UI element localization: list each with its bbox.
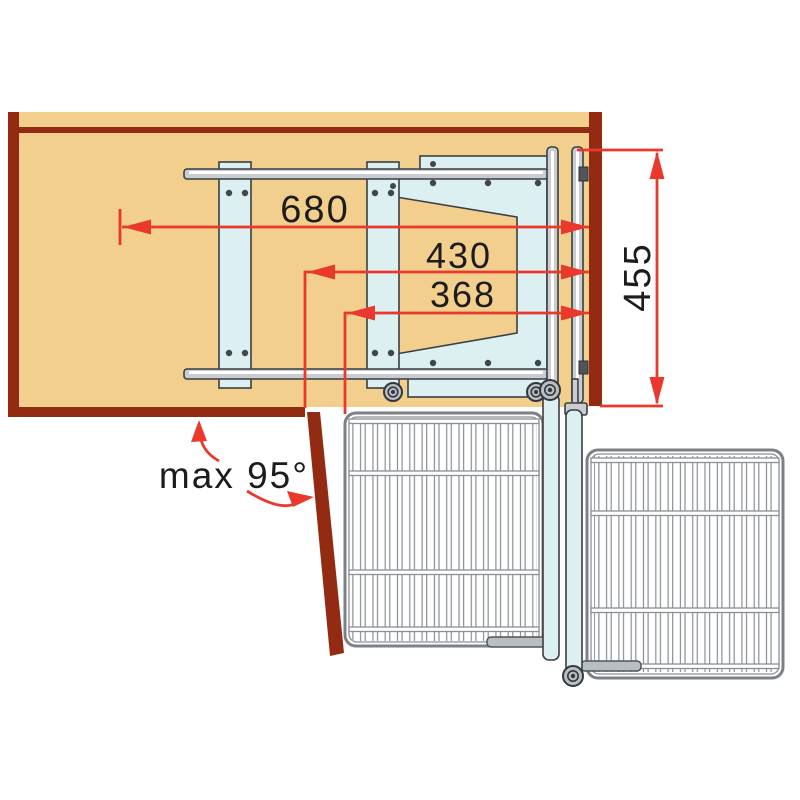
arrow-up-icon [191, 420, 207, 442]
cabinet-left-panel [8, 112, 19, 417]
dim-430-label: 430 [426, 235, 492, 276]
basket-front-bracket [487, 637, 548, 647]
angle-label: max 95° [159, 455, 309, 496]
basket-front-wires [352, 419, 537, 641]
rail-clip-bottom [579, 361, 588, 374]
dim-368-label: 368 [430, 274, 496, 315]
pivot-rail-front [547, 147, 558, 388]
pullout-mechanism [184, 147, 588, 403]
dim-455-label: 455 [617, 242, 659, 311]
basket-side-wires [594, 456, 776, 672]
top-rail [184, 169, 548, 179]
arrow-up-icon [650, 151, 665, 179]
basket-front [345, 413, 548, 647]
cabinet-top-band [8, 112, 601, 129]
arm-front [543, 394, 559, 660]
cabinet-pullout-diagram: 680 430 368 455 max 95° [0, 0, 800, 800]
cabinet-bottom-panel [8, 407, 305, 417]
arm-rear [566, 410, 582, 673]
basket-side [581, 450, 783, 678]
frame-post-right [367, 162, 399, 388]
dim-680-label: 680 [280, 189, 349, 231]
pivot-boss [563, 666, 583, 686]
bottom-rail [184, 369, 548, 379]
basket-side-bracket [581, 661, 641, 671]
diagram-stage: 680 430 368 455 max 95° [0, 0, 800, 800]
angle-annotation: max 95° [159, 420, 314, 507]
arrow-down-icon [650, 377, 665, 405]
cabinet-top-edge [8, 127, 601, 134]
pivot-boss [384, 383, 402, 401]
cabinet-right-panel [589, 112, 602, 406]
rail-clip-top [579, 167, 588, 181]
pivot-boss [540, 380, 560, 400]
door-panel [307, 412, 344, 656]
